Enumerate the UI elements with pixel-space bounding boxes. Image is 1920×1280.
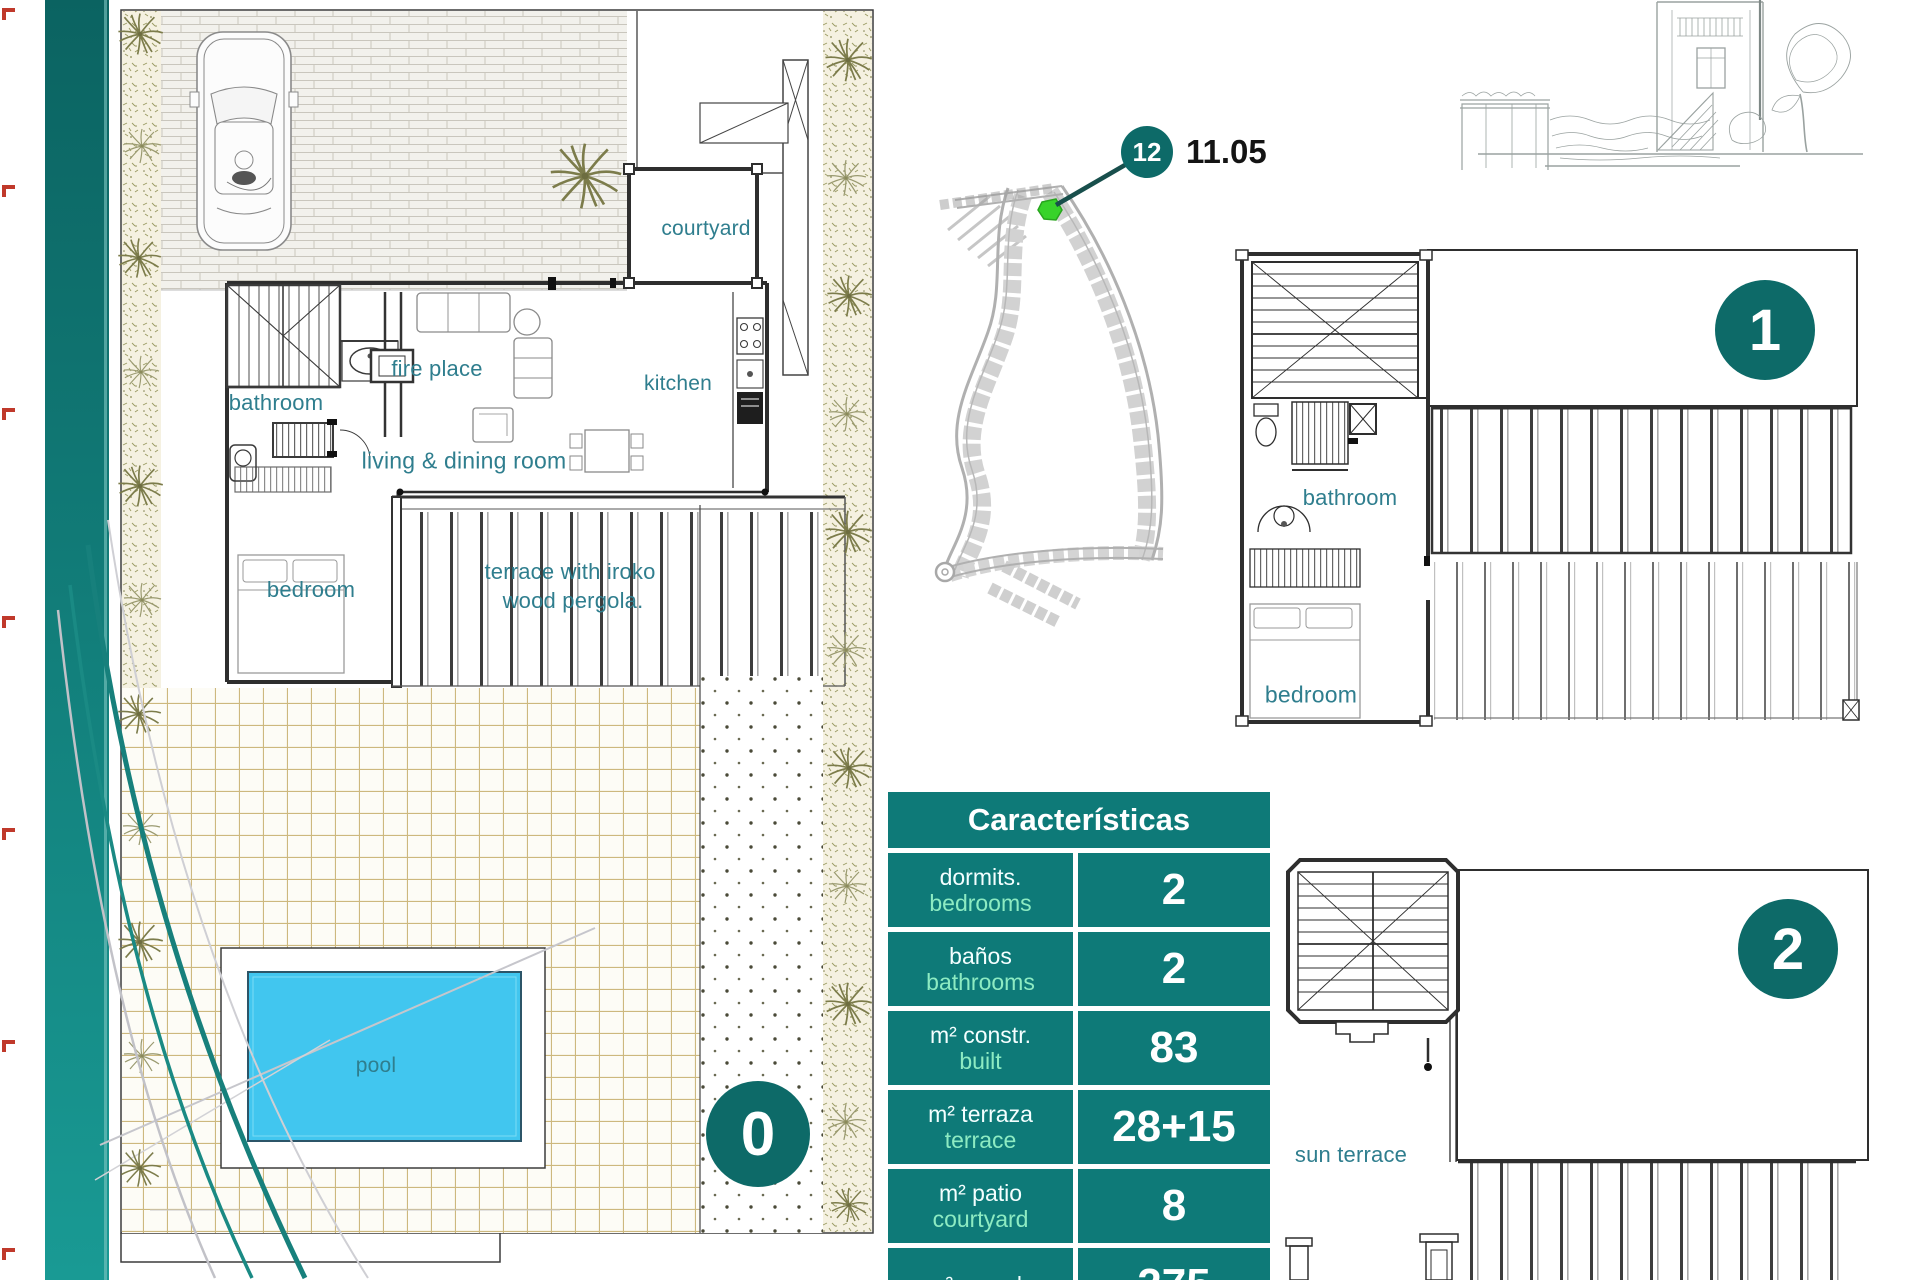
label-courtyard: courtyard <box>661 217 750 241</box>
bedroom-furniture <box>238 555 344 673</box>
elevation-sketch <box>1460 0 1863 170</box>
row-label: dormits. bedrooms <box>888 853 1073 927</box>
red-registration-marks <box>2 8 15 1260</box>
row-label-en: built <box>959 1048 1001 1074</box>
table-row-bedrooms: dormits. bedrooms 2 <box>888 853 1270 927</box>
label-bedroom-ground: bedroom <box>267 577 355 603</box>
ground-floor-plan <box>95 10 873 1262</box>
plot-number-badge: 12 <box>1121 126 1173 178</box>
plot-elevation-value: 11.05 <box>1186 133 1267 171</box>
row-label-es: baños <box>949 943 1012 969</box>
floor-1-badge: 1 <box>1715 280 1815 380</box>
label-kitchen: kitchen <box>644 372 712 396</box>
row-value: 2 <box>1078 853 1270 927</box>
label-fire-place: fire place <box>391 356 482 382</box>
row-label-en: terrace <box>945 1127 1017 1153</box>
table-row-built: m² constr. built 83 <box>888 1011 1270 1085</box>
row-label-es: m² patio <box>939 1180 1022 1206</box>
floor-2-badge: 2 <box>1738 899 1838 999</box>
label-bedroom-floor1: bedroom <box>1265 682 1357 709</box>
car-top-view <box>190 32 298 250</box>
row-label-en: bathrooms <box>926 969 1035 995</box>
label-sun-terrace-floor2: sun terrace <box>1295 1142 1407 1168</box>
row-value: 8 <box>1078 1169 1270 1243</box>
row-label: m² terraza terrace <box>888 1090 1073 1164</box>
label-living-dining: living & dining room <box>362 448 567 475</box>
label-pool: pool <box>356 1054 397 1078</box>
label-terrace-line2: wood pergola. <box>503 588 644 614</box>
characteristics-title: Características <box>888 792 1270 848</box>
row-label-en: courtyard <box>933 1206 1029 1232</box>
row-label-es: dormits. <box>940 864 1022 890</box>
table-row-courtyard: m² patio courtyard 8 <box>888 1169 1270 1243</box>
row-label: m² patio courtyard <box>888 1169 1073 1243</box>
floor-2-planters <box>1286 1234 1458 1280</box>
row-label-es: m² constr. <box>930 1022 1031 1048</box>
row-value: 83 <box>1078 1011 1270 1085</box>
row-value: 275 <box>1078 1248 1270 1280</box>
site-plan-map <box>936 165 1163 622</box>
characteristics-table: Características dormits. bedrooms 2 baño… <box>888 792 1270 1280</box>
floor-0-badge: 0 <box>706 1081 810 1187</box>
table-row-bathrooms: baños bathrooms 2 <box>888 932 1270 1006</box>
floor-1-wardrobe <box>1250 549 1360 587</box>
row-label-es: m² parcela <box>926 1272 1035 1280</box>
row-value: 28+15 <box>1078 1090 1270 1164</box>
table-row-terrace: m² terraza terrace 28+15 <box>888 1090 1270 1164</box>
row-value: 2 <box>1078 932 1270 1006</box>
label-terrace-line1: terrace with iroko <box>484 559 655 585</box>
label-bathroom-floor1: bathroom <box>1303 485 1398 511</box>
row-label: m² constr. built <box>888 1011 1073 1085</box>
row-label-es: m² terraza <box>928 1101 1033 1127</box>
row-label: m² parcela <box>888 1248 1073 1280</box>
label-bathroom-ground: bathroom <box>229 390 324 416</box>
row-label: baños bathrooms <box>888 932 1073 1006</box>
floorplan-sheet: courtyard kitchen fire place bathroom li… <box>0 0 1920 1280</box>
table-row-plot: m² parcela 275 <box>888 1248 1270 1280</box>
row-label-en: bedrooms <box>929 890 1031 916</box>
plot-marker-leader-line <box>1056 165 1125 205</box>
